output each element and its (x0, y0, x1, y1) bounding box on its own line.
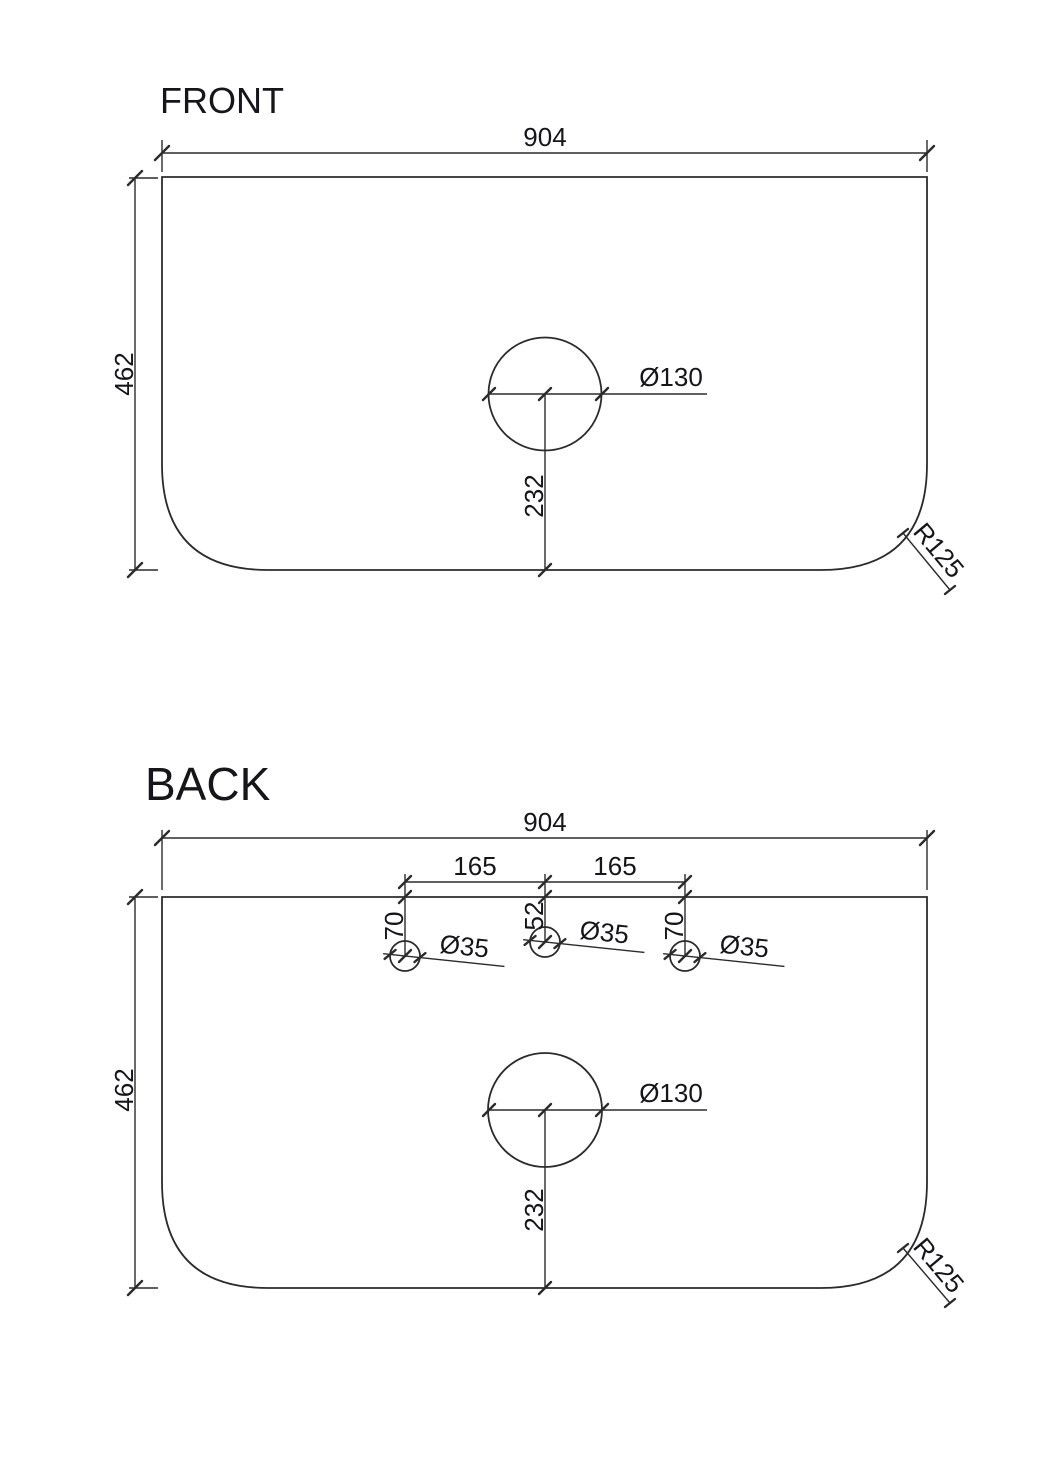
back-tap-diameter-left-value: Ø35 (438, 929, 490, 964)
back-basin-offset-value: 232 (519, 1188, 549, 1231)
back-tap-diameter-right-value: Ø35 (718, 929, 770, 964)
front-basin-diameter-value: Ø130 (639, 362, 703, 392)
back-tap-spacing-right-value: 165 (593, 851, 636, 881)
back-tap-spacing-left-value: 165 (453, 851, 496, 881)
front-height-dimension: 462 (109, 171, 158, 577)
back-tap-offset-center-value: 52 (519, 902, 549, 931)
back-corner-radius-callout: R125 (898, 1232, 970, 1307)
back-basin-diameter-value: Ø130 (639, 1078, 703, 1108)
drawing-sheet: FRONT 904 462 Ø130 (0, 0, 1040, 1473)
front-view-title: FRONT (160, 80, 284, 121)
front-corner-radius-callout: R125 (898, 517, 970, 594)
front-height-value: 462 (109, 352, 139, 395)
front-basin-offset-value: 232 (519, 474, 549, 517)
back-basin-offset-dimension: 232 (519, 1104, 551, 1294)
back-view-title: BACK (145, 758, 271, 810)
back-tap-offset-right-dimension: 70 (659, 874, 691, 962)
front-view: FRONT 904 462 Ø130 (109, 80, 970, 594)
front-width-dimension: 904 (155, 122, 934, 172)
front-width-value: 904 (523, 122, 566, 152)
technical-drawing: FRONT 904 462 Ø130 (0, 0, 1040, 1473)
back-tap-offset-left-value: 70 (379, 912, 409, 941)
back-height-value: 462 (109, 1068, 139, 1111)
back-height-dimension: 462 (109, 890, 158, 1295)
back-width-value: 904 (523, 807, 566, 837)
back-view: BACK 904 462 (109, 758, 970, 1307)
back-tap-offset-left-dimension: 70 (379, 874, 411, 962)
back-tap-offset-right-value: 70 (659, 912, 689, 941)
back-tap-diameter-center-value: Ø35 (578, 915, 630, 950)
front-basin-offset-dimension: 232 (519, 388, 551, 576)
